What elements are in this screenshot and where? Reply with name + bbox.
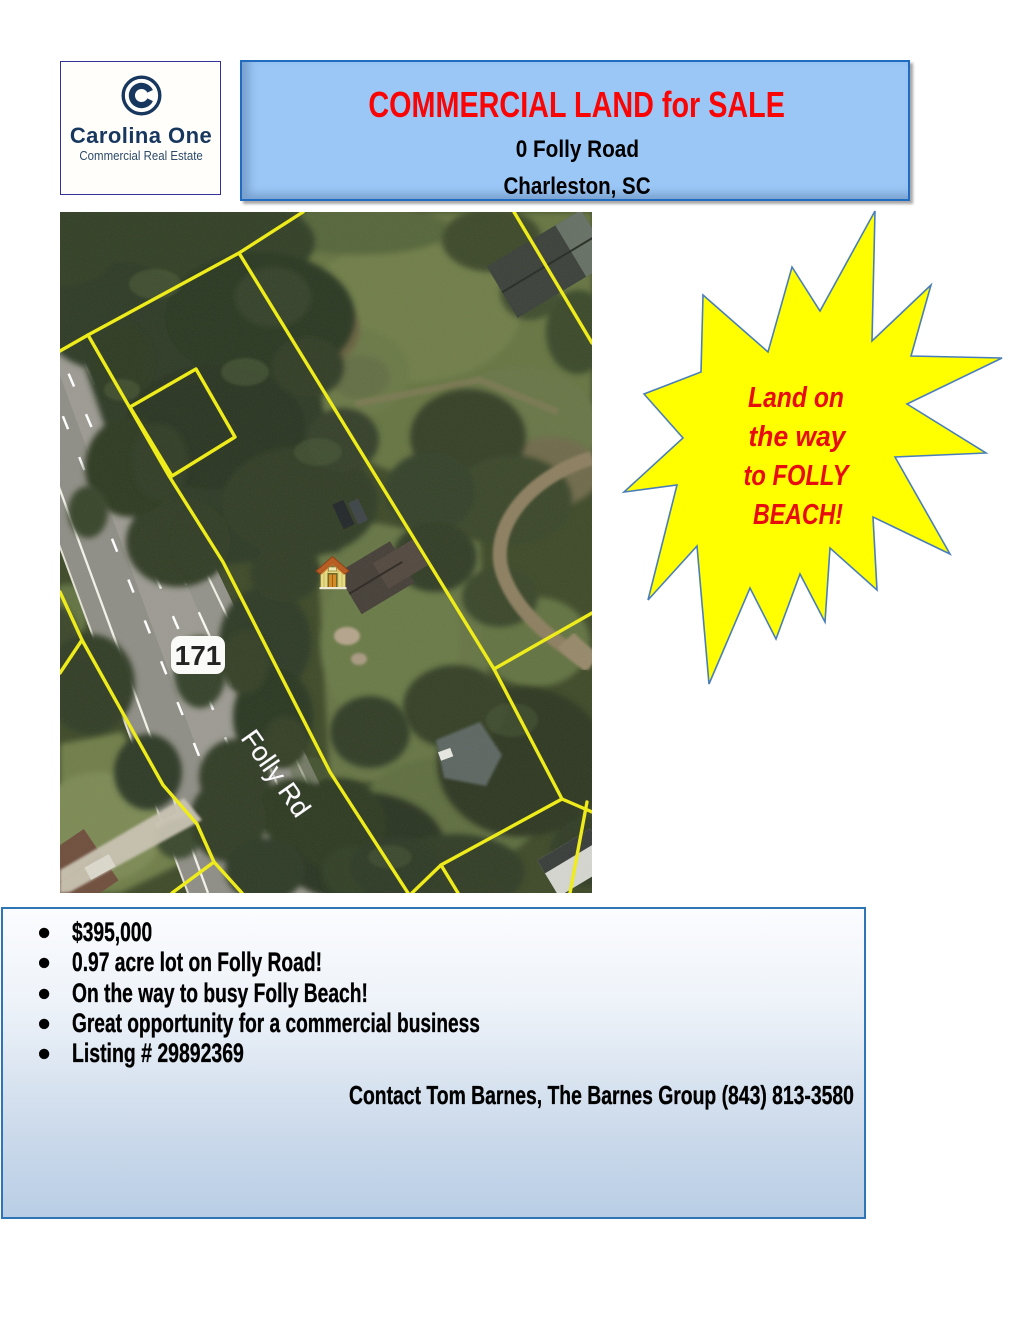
svg-text:the way: the way	[749, 421, 848, 453]
svg-text:BEACH!: BEACH!	[753, 499, 843, 531]
svg-text:Land on: Land on	[748, 382, 844, 414]
svg-text:to FOLLY: to FOLLY	[744, 460, 851, 492]
